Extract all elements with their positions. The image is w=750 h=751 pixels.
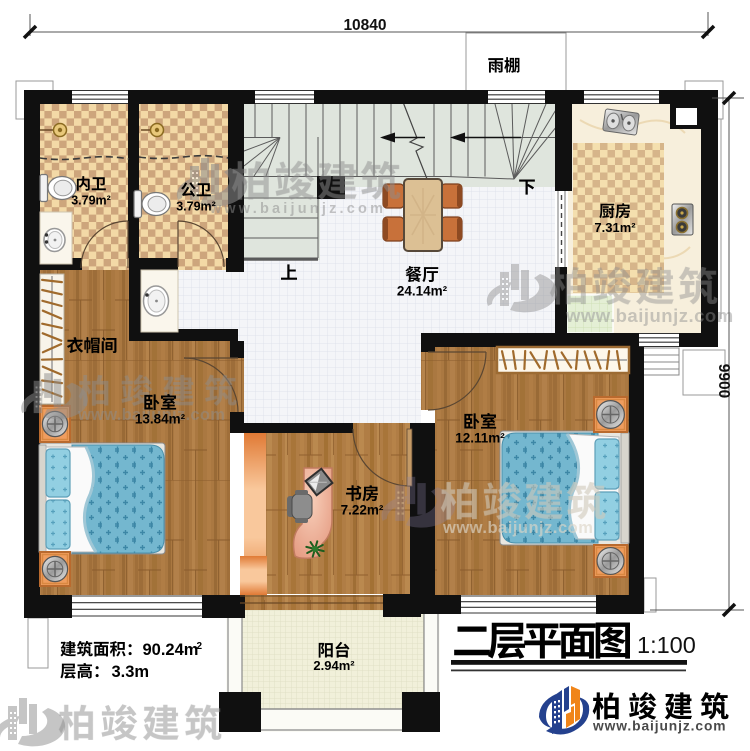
svg-text:9900: 9900 xyxy=(715,364,732,398)
svg-text:www.baijunjz.com: www.baijunjz.com xyxy=(565,305,734,326)
svg-text:www.baijunjz.com: www.baijunjz.com xyxy=(592,719,726,734)
svg-text:12.11m²: 12.11m² xyxy=(455,431,505,446)
svg-text:10840: 10840 xyxy=(343,17,386,34)
svg-text:3.3m: 3.3m xyxy=(112,663,150,681)
svg-text:3.79m²: 3.79m² xyxy=(71,193,111,207)
svg-text:1:100: 1:100 xyxy=(637,632,696,658)
svg-text:7.22m²: 7.22m² xyxy=(341,503,384,518)
svg-text:7.31m²: 7.31m² xyxy=(594,220,636,235)
svg-text:3.79m²: 3.79m² xyxy=(176,199,216,213)
svg-text:24.14m²: 24.14m² xyxy=(397,284,448,299)
svg-text:2.94m²: 2.94m² xyxy=(313,658,355,673)
svg-text:90.24m: 90.24m xyxy=(143,641,199,659)
svg-text:www.baijunjz.com: www.baijunjz.com xyxy=(209,201,386,217)
svg-text:13.84m²: 13.84m² xyxy=(135,412,186,427)
svg-text:2: 2 xyxy=(197,641,203,652)
svg-text:www.baijunjz.com: www.baijunjz.com xyxy=(442,519,593,537)
